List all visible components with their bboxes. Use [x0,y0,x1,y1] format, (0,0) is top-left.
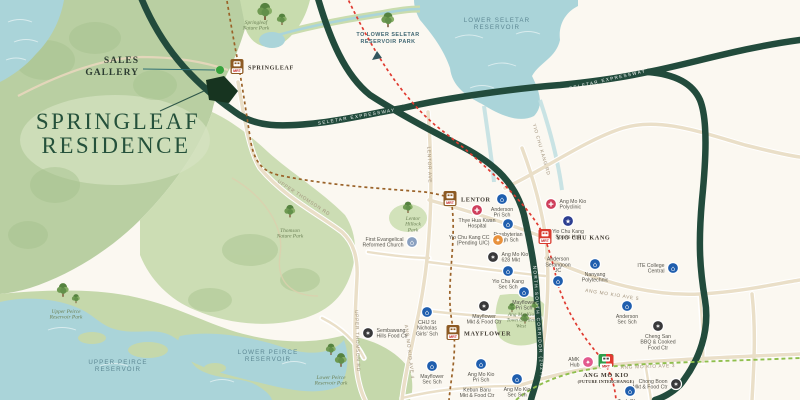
poi-nanyang-polytechnic: ⌂NanyangPolytechnic [582,259,609,284]
school-glyph: ⌂ [671,264,675,272]
poi-mayflower-sec-sch: ⌂MayflowerSec Sch [420,361,444,386]
poi-label: Food Ctr [648,345,668,351]
poi-yio-chu-kang-cc: ✦Yio Chu Kang CC(Pending U/C) [449,235,504,247]
school-glyph: ⌂ [515,375,519,383]
train-icon [450,327,457,332]
poi-label: Central [648,269,665,275]
lower-peirce-reservoir-label: RESERVOIR [245,356,291,363]
poi-label: 628 Mkt [502,258,521,264]
poi-label: Hospital [468,224,487,230]
amk-town-garden-west-label: West [516,323,526,329]
svg-text:MRT: MRT [449,335,458,339]
poi-kebun-baru-mkt-food-ctr: ✶Kebun BaruMkt & Food Ctr [460,387,495,400]
medical-glyph: ✚ [474,206,480,214]
train-icon [234,61,241,66]
location-map: SALES GALLERY SPRINGLEAF RESIDENCE Sprin… [0,0,800,400]
poi-label: Mkt & Food Ctr [633,385,668,391]
upper-peirce-reservoir-label: UPPER PEIRCE [88,359,147,366]
svg-text:MRT: MRT [541,239,550,243]
market-glyph: ✶ [490,253,495,261]
peirce-island [128,342,168,358]
direction-note-layer: TO LOWER SELETARRESERVOIR PARK [356,32,419,60]
station-label: ANG MO KIO [583,372,629,379]
sports-glyph: ★ [565,217,571,225]
lentor-hillock-park-label: Park [407,227,419,233]
poi-label: Polytechnic [582,278,609,284]
poi-cheng-san-bbq-cooked-food-ctr: ✶Cheng SanBBQ & CookedFood Ctr [640,321,675,352]
poi-label: Mkt & Food Ctr [467,320,502,326]
poi-ang-mo-kio-628-mkt: ✶Ang Mo Kio628 Mkt [488,252,529,264]
poi-amk-hub: ✦AMKHub [568,357,593,369]
poi-label: Sec Sch [498,285,517,291]
church-glyph: ⌂ [410,238,414,246]
direction-note-label: TO LOWER SELETAR [356,32,419,38]
train-icon [447,193,454,198]
poi-label: Hub [570,363,580,369]
mall-glyph: ✦ [585,358,591,366]
market-glyph: ✶ [655,322,660,330]
school-glyph: ⌂ [628,387,632,395]
school-glyph: ⌂ [430,362,434,370]
poi-label: Reformed Church [363,243,404,249]
school-glyph: ⌂ [522,288,526,296]
springleaf-residence-site [206,76,238,103]
poi-chong-boon-mkt-food-ctr: ✶Chong BoonMkt & Food Ctr [633,379,682,391]
upper-peirce-reservoir-label: RESERVOIR [95,366,141,373]
poi-label: Mkt & Food Ctr [460,393,495,399]
poi-label: Pri Sch [516,306,533,312]
school-glyph: ⌂ [425,308,429,316]
station-label: YIO CHU KANG [556,235,610,242]
cc-glyph: ✦ [495,236,501,244]
poi-ite-college-central: ⌂ITE CollegeCentral [637,263,678,275]
project-title-line1: SPRINGLEAF [36,109,200,134]
upper-peirce-reservoir-park-label: Reservoir Park [49,315,83,321]
direction-note-label: RESERVOIR PARK [360,39,415,45]
springleaf-nature-park-label: Nature Park [242,26,270,32]
poi-label: Hills Food Ctr [377,334,409,340]
station-label: SPRINGLEAF [248,65,294,72]
lower-seletar-reservoir-label: RESERVOIR [474,24,520,31]
lower-peirce-reservoir-label: LOWER PEIRCE [238,349,299,356]
svg-text:MRT: MRT [602,365,611,369]
poi-label: (Pending U/C) [457,241,490,247]
stream-pond [259,32,285,48]
medical-glyph: ✚ [548,200,554,208]
market-glyph: ✶ [673,380,678,388]
road-label: SELETAR EXPRESSWAY [318,107,396,126]
lower-peirce-reservoir-park-label: Reservoir Park [314,381,348,387]
mrt-station-lentor: MRTLENTOR [444,191,491,206]
poi-anderson-sec-sch: ⌂AndersonSec Sch [616,301,638,326]
peirce-island [78,332,106,344]
station-label: LENTOR [461,197,491,204]
poi-label: Girls' Sch [416,331,438,337]
school-glyph: ⌂ [593,260,597,268]
poi-first-evangelical-reformed-church: ⌂First EvangelicalReformed Church [363,237,418,249]
station-sublabel: (FUTURE INTERCHANGE) [578,379,635,384]
poi-label: JC [555,268,562,274]
school-glyph: ⌂ [506,220,510,228]
mrt-station-springleaf: MRTSPRINGLEAF [231,59,294,74]
poi-label: Sec Sch [507,393,526,399]
poi-sembawang-hills-food-ctr: ✶SembawangHills Food Ctr [363,328,409,340]
poi-ang-mo-kio-sec-sch: ⌂Ang Mo KioSec Sch [504,374,531,399]
station-label: MAYFLOWER [464,331,511,338]
poi-ang-mo-kio-polyclinic: ✚Ang Mo KioPolyclinic [546,199,587,211]
poi-label: Sec Sch [617,320,636,326]
market-glyph: ✶ [481,302,486,310]
canal-east [540,100,562,190]
svg-text:MRT: MRT [446,201,455,205]
lower-seletar-reservoir-label: LOWER SELETAR [464,17,530,24]
poi-label: Sec Sch [422,380,441,386]
sales-gallery-label-line2: GALLERY [85,68,139,78]
poi-ang-mo-kio-pri-sch: ⌂Ang Mo KioPri Sch [468,359,495,384]
poi-label: Pri Sch [494,213,511,219]
poi-label: Polyclinic [560,205,582,211]
school-glyph: ⌂ [556,277,560,285]
thomson-nature-park-label: Nature Park [276,234,304,240]
school-glyph: ⌂ [500,195,504,203]
peirce-island [204,363,226,373]
school-glyph: ⌂ [625,302,629,310]
train-icon [542,231,549,236]
sales-gallery-label-line1: SALES [104,56,139,66]
poi-anderson-pri-sch: ⌂AndersonPri Sch [491,194,513,219]
school-glyph: ⌂ [506,267,510,275]
school-glyph: ⌂ [479,360,483,368]
poi-label: Pri Sch [473,378,490,384]
market-glyph: ✶ [365,329,370,337]
svg-text:MRT: MRT [233,69,242,73]
sales-gallery-dot [216,66,224,74]
project-title-line2: RESIDENCE [42,133,191,158]
